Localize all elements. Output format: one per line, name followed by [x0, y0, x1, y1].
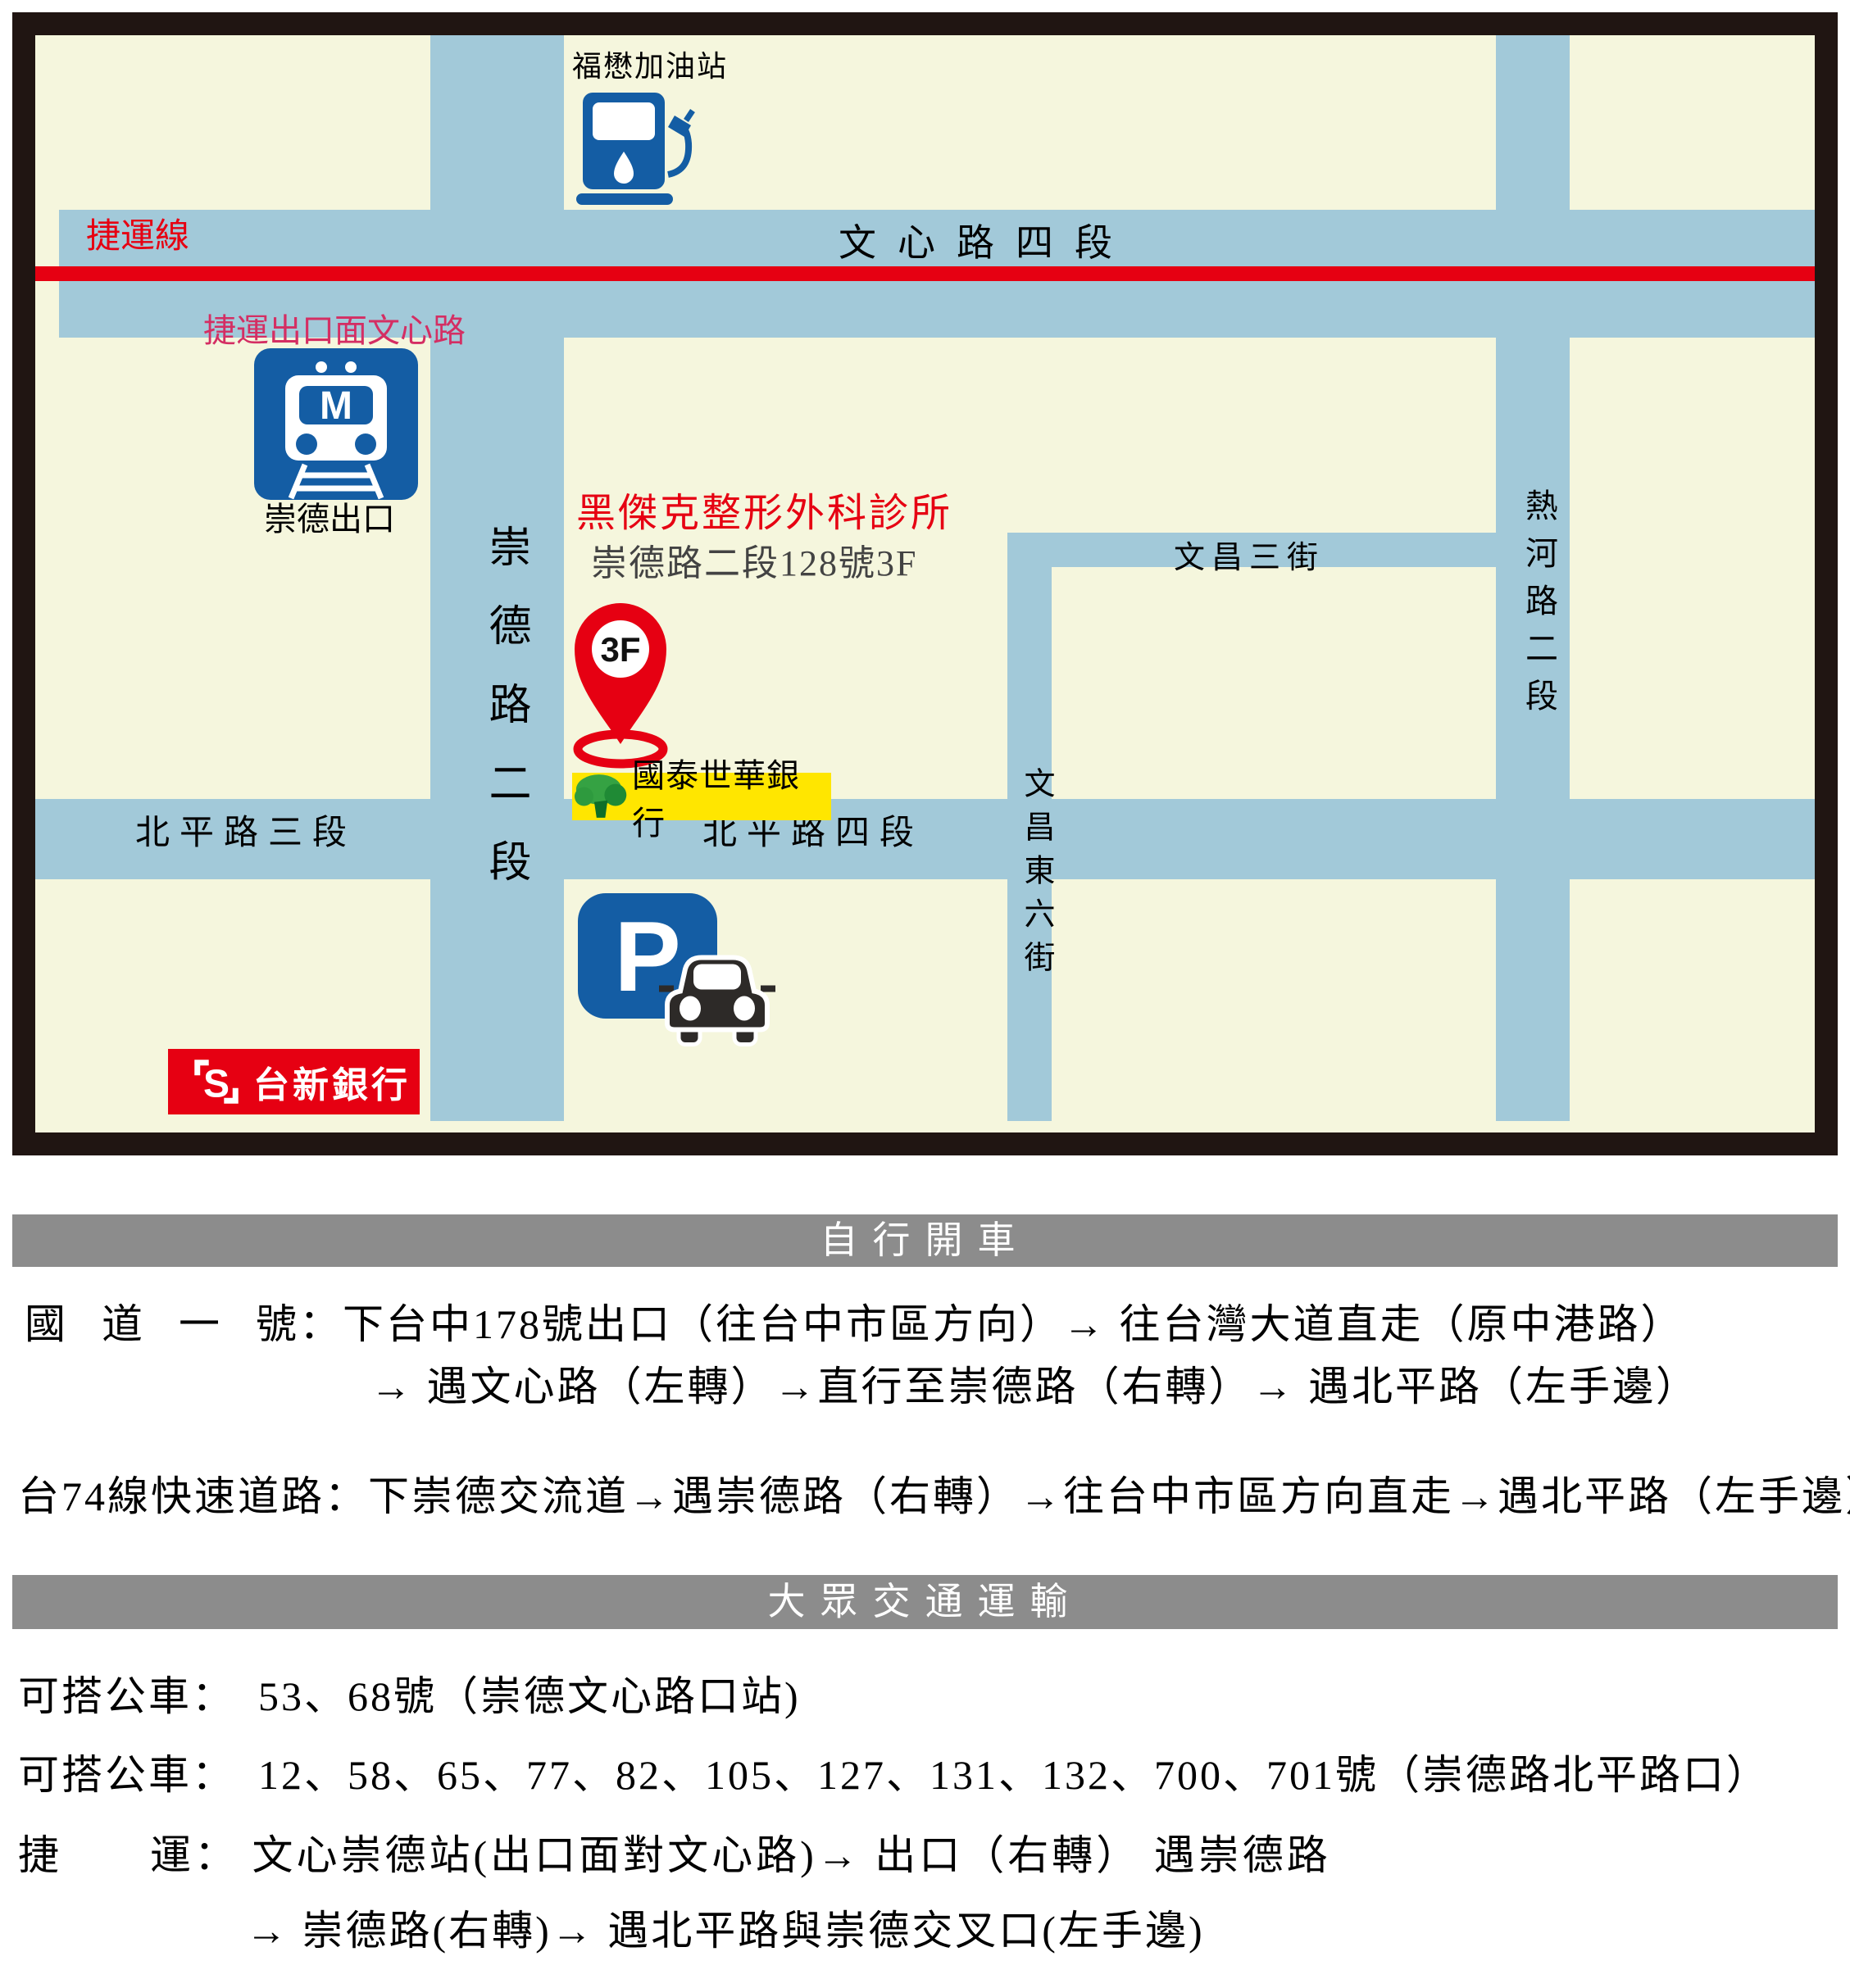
road-label-chongde: 崇德路二段	[475, 524, 536, 918]
clinic-name-label: 黑傑克整形外科診所	[576, 491, 952, 536]
driving-route2-label: 台74線快速道路	[18, 1473, 325, 1519]
mrt-letter: M	[320, 384, 352, 428]
mrt-row-label: 捷運	[18, 1822, 194, 1881]
mrt-line-label: 捷運線	[86, 217, 189, 256]
mrt-row-text: 文心崇德站(出口面對文心路)→ 出口（右轉） 遇崇德路	[252, 1832, 1331, 1878]
transit-bus-line2: 可搭公車：12、58、65、77、82、105、127、131、132、700、…	[18, 1742, 1770, 1801]
gas-pump-icon	[576, 93, 698, 206]
transit-section-header: 大眾交通運輸	[12, 1575, 1838, 1629]
road-label-rehe: 熱河路二段	[1515, 488, 1562, 726]
transit-mrt-line1: 捷運： 文心崇德站(出口面對文心路)→ 出口（右轉） 遇崇德路	[18, 1822, 1331, 1881]
bus2-label: 可搭公車：	[18, 1752, 235, 1798]
transit-mrt-line2: → 崇德路(右轉)→ 遇北平路與崇德交叉口(左手邊)	[246, 1898, 1205, 1957]
car-icon	[656, 945, 779, 1050]
bus2-text: 12、58、65、77、82、105、127、131、132、700、701號（…	[258, 1752, 1770, 1798]
mrt-line-red-stripe	[35, 266, 1815, 281]
driving-route2-colon: ：	[325, 1473, 368, 1519]
road-label-wenchang3: 文昌三街	[1174, 541, 1325, 577]
location-map-page: 捷運線 文心路四段 捷運出口面文心路 崇德出口 福懋加油站 黑傑克整形外科診所 …	[0, 0, 1850, 1988]
road-label-wenxin: 文心路四段	[839, 222, 1134, 266]
road-label-wenchang-e6: 文昌東六街	[1014, 767, 1059, 984]
road-label-beiping3: 北平路三段	[135, 814, 357, 853]
pin-floor-label: 3F	[600, 630, 640, 669]
taishin-bank-label: 台新銀行	[253, 1055, 411, 1108]
bus1-label: 可搭公車：	[18, 1673, 235, 1719]
transit-bus-line1: 可搭公車：53、68號（崇德文心路口站)	[18, 1663, 801, 1722]
mrt-exit-name-label: 崇德出口	[264, 501, 395, 538]
cathay-bank-marker: 國泰世華銀行	[572, 773, 831, 820]
gas-station-label: 福懋加油站	[572, 50, 728, 84]
mrt-exit-note-label: 捷運出口面文心路	[203, 312, 466, 350]
clinic-address-label: 崇德路二段128號3F	[591, 543, 917, 585]
mrt-row-colon: ：	[194, 1832, 239, 1878]
taishin-letter: S	[203, 1063, 230, 1106]
taishin-bank-marker: S 台新銀行	[168, 1049, 420, 1114]
tree-icon	[574, 774, 629, 819]
driving-route1-label: 國道一號	[25, 1291, 299, 1350]
driving-route1-line1: 國道一號：下台中178號出口（往台中市區方向）→ 往台灣大道直走（原中港路）	[25, 1291, 1684, 1350]
driving-route2-line: 台74線快速道路：下崇德交流道→遇崇德路（右轉）→往台中市區方向直走→遇北平路（…	[18, 1464, 1850, 1523]
map-panel: 捷運線 文心路四段 捷運出口面文心路 崇德出口 福懋加油站 黑傑克整形外科診所 …	[12, 12, 1838, 1155]
driving-route1-colon: ：	[299, 1301, 343, 1347]
cathay-bank-label: 國泰世華銀行	[632, 749, 831, 844]
mrt-station-icon: M	[254, 348, 418, 500]
driving-route1-text: 下台中178號出口（往台中市區方向）→ 往台灣大道直走（原中港路）	[343, 1301, 1684, 1347]
driving-section-header: 自行開車	[12, 1214, 1838, 1267]
clinic-location-pin: 3F	[568, 588, 675, 769]
driving-route2-text: 下崇德交流道→遇崇德路（右轉）→往台中市區方向直走→遇北平路（左手邊）	[368, 1473, 1850, 1519]
taishin-logo-icon: S	[191, 1056, 242, 1107]
driving-route1-line2: → 遇文心路（左轉）→直行至崇德路（右轉）→ 遇北平路（左手邊）	[370, 1354, 1699, 1413]
bus1-text: 53、68號（崇德文心路口站)	[258, 1673, 801, 1719]
